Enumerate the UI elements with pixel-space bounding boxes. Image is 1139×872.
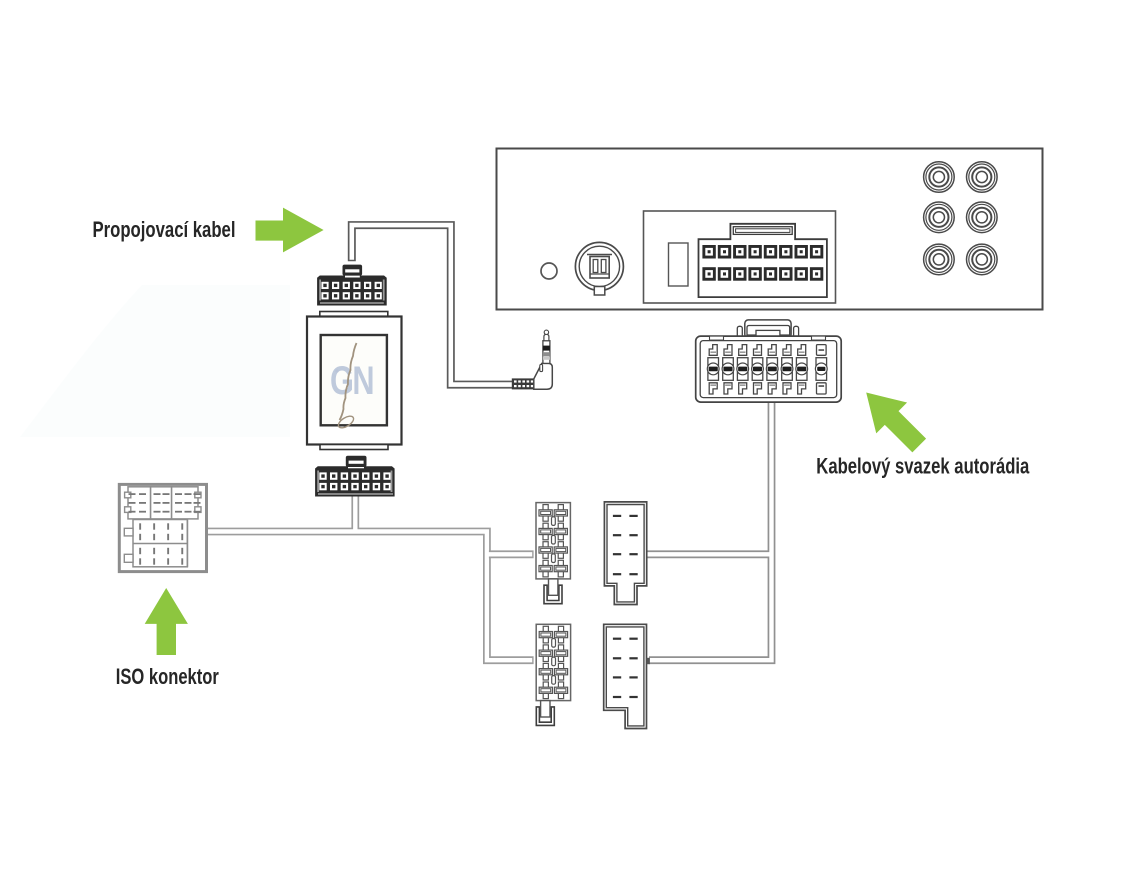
svg-text:Kabelový svazek autorádia: Kabelový svazek autorádia [816,453,1030,478]
svg-text:ISO konektor: ISO konektor [116,664,219,689]
svg-text:GN: GN [330,359,373,403]
svg-text:Propojovací kabel: Propojovací kabel [93,217,236,242]
